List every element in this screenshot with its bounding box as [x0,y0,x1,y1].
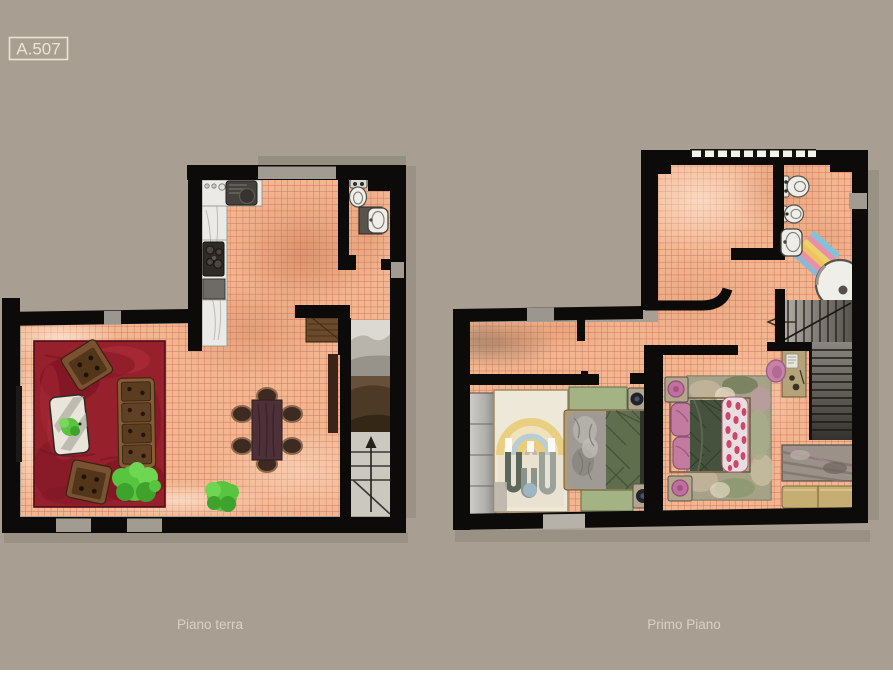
svg-text:A.507: A.507 [16,40,60,59]
svg-text:Primo Piano: Primo Piano [647,617,721,632]
svg-text:Piano terra: Piano terra [177,617,244,632]
